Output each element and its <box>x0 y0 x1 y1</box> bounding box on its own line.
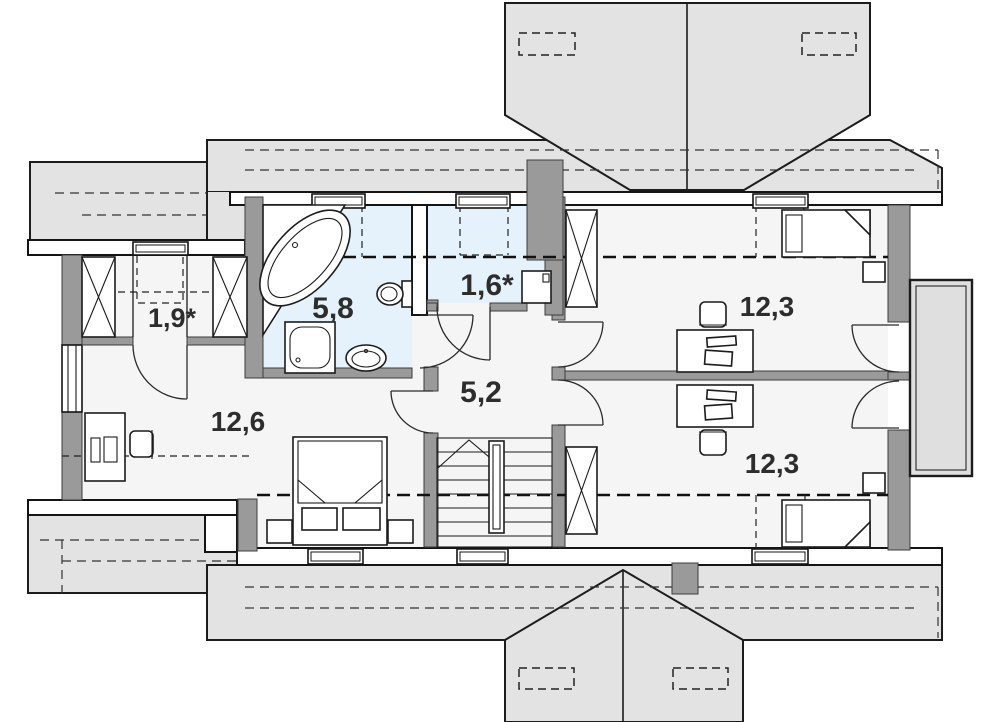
chair <box>699 302 727 327</box>
wardrobe-box <box>566 447 597 534</box>
desk <box>85 413 125 481</box>
room-label-hall: 5,2 <box>460 376 502 409</box>
sink <box>346 345 386 371</box>
wardrobe-box <box>82 257 115 337</box>
left-wall-window <box>62 345 82 412</box>
wardrobe-box <box>213 257 247 337</box>
nightstand <box>267 520 292 543</box>
room-label-bathroom: 5,8 <box>312 292 354 325</box>
chair <box>699 430 727 455</box>
room-label-utility: 1,6* <box>460 269 514 302</box>
room-label-closet: 1,9* <box>148 303 197 333</box>
room-label-bedroom-left: 12,6 <box>211 406 266 437</box>
chimney-south <box>672 563 698 594</box>
desk <box>677 330 753 372</box>
nightstand <box>863 473 885 493</box>
nightstand <box>863 262 885 282</box>
floor-plan-page: 1,9* 5,8 1,6* 5,2 12,6 12,3 12,3 <box>0 0 999 722</box>
bath-utility-partition <box>412 205 427 315</box>
floor-plan: 1,9* 5,8 1,6* 5,2 12,6 12,3 12,3 <box>0 0 999 722</box>
room-label-bedroom-right-top: 12,3 <box>740 291 795 322</box>
shower <box>285 322 335 373</box>
toilet <box>377 281 412 307</box>
nightstand <box>388 520 413 543</box>
washing-machine <box>522 271 551 303</box>
wardrobe-box <box>566 210 597 307</box>
chair <box>130 430 153 459</box>
balcony <box>910 280 972 476</box>
desk <box>677 385 753 427</box>
room-label-bedroom-right-bottom: 12,3 <box>745 448 800 479</box>
